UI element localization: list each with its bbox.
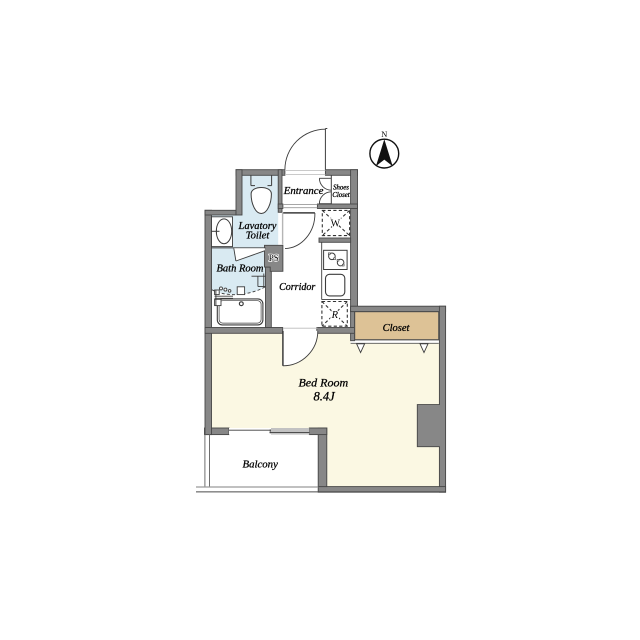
svg-text:Entrance: Entrance [283, 185, 324, 197]
svg-text:Closet: Closet [332, 192, 350, 199]
svg-text:Bath Room: Bath Room [217, 263, 264, 274]
svg-text:Shoes: Shoes [333, 185, 349, 192]
svg-text:Bed Room: Bed Room [298, 375, 348, 389]
svg-text:Corridor: Corridor [279, 282, 315, 293]
svg-text:Balcony: Balcony [243, 458, 279, 470]
svg-text:Toilet: Toilet [246, 231, 271, 242]
svg-text:N: N [381, 130, 387, 139]
svg-text:Closet: Closet [383, 323, 411, 334]
svg-text:PS: PS [269, 253, 279, 263]
svg-text:W: W [331, 219, 341, 230]
svg-text:R: R [331, 310, 339, 321]
svg-text:8.4J: 8.4J [314, 389, 337, 403]
